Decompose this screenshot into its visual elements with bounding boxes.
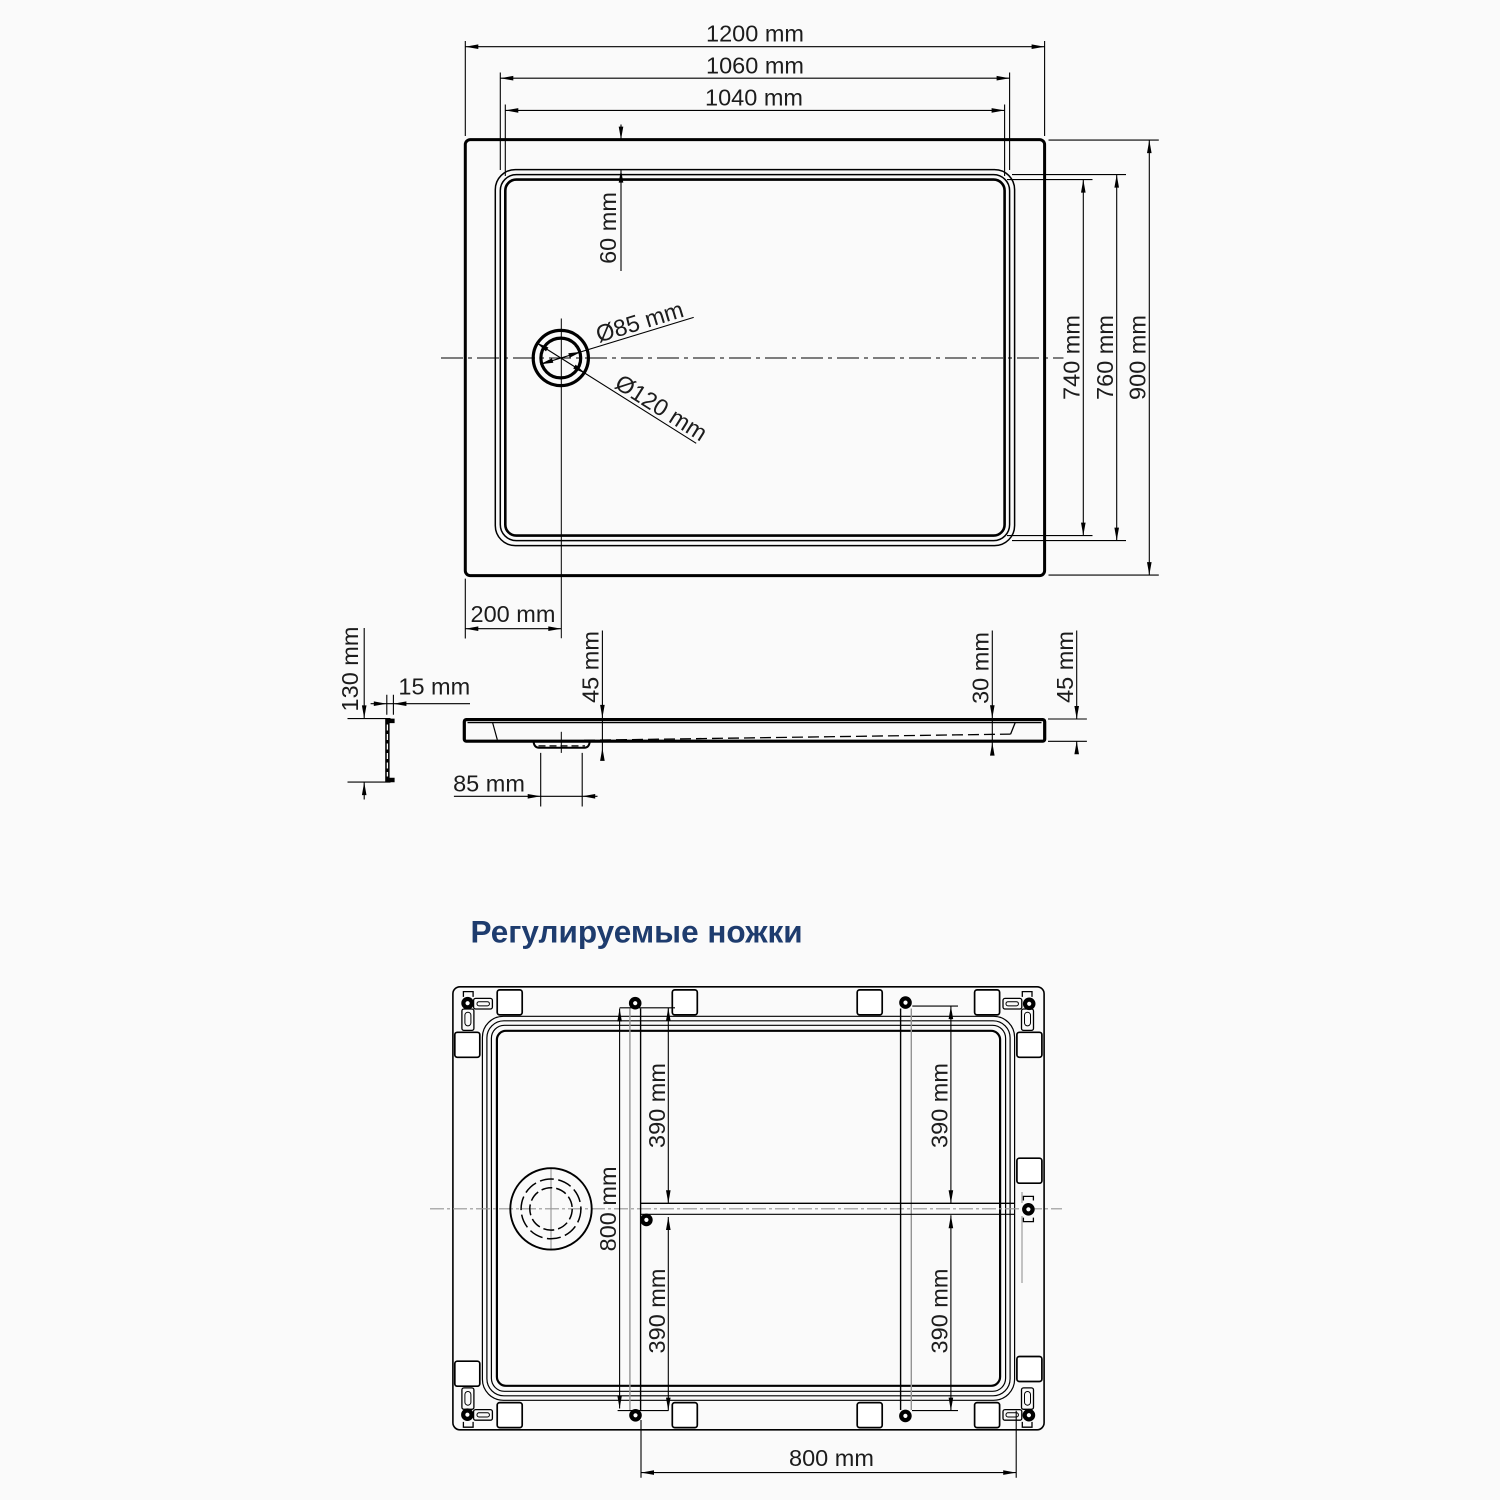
svg-text:1040 mm: 1040 mm <box>705 85 803 111</box>
svg-text:200 mm: 200 mm <box>471 601 556 627</box>
svg-text:390 mm: 390 mm <box>644 1269 670 1354</box>
svg-text:390 mm: 390 mm <box>926 1269 952 1354</box>
svg-text:15 mm: 15 mm <box>398 674 470 700</box>
svg-text:800 mm: 800 mm <box>789 1445 874 1471</box>
svg-text:800 mm: 800 mm <box>595 1166 621 1251</box>
svg-text:30 mm: 30 mm <box>967 632 993 704</box>
svg-text:900 mm: 900 mm <box>1125 315 1151 400</box>
svg-text:Ø85 mm: Ø85 mm <box>593 296 687 347</box>
svg-text:1060 mm: 1060 mm <box>706 52 804 78</box>
svg-text:85 mm: 85 mm <box>453 770 525 796</box>
svg-text:390 mm: 390 mm <box>644 1063 670 1148</box>
svg-text:760 mm: 760 mm <box>1092 315 1118 400</box>
svg-text:390 mm: 390 mm <box>926 1063 952 1148</box>
svg-text:45 mm: 45 mm <box>1052 631 1078 703</box>
svg-text:Регулируемые ножки: Регулируемые ножки <box>471 914 803 950</box>
svg-text:Ø120 mm: Ø120 mm <box>611 369 712 446</box>
svg-text:60 mm: 60 mm <box>595 192 621 264</box>
svg-text:1200 mm: 1200 mm <box>706 21 804 47</box>
svg-text:45 mm: 45 mm <box>578 631 604 703</box>
svg-text:130 mm: 130 mm <box>337 627 363 712</box>
svg-text:740 mm: 740 mm <box>1059 315 1085 400</box>
